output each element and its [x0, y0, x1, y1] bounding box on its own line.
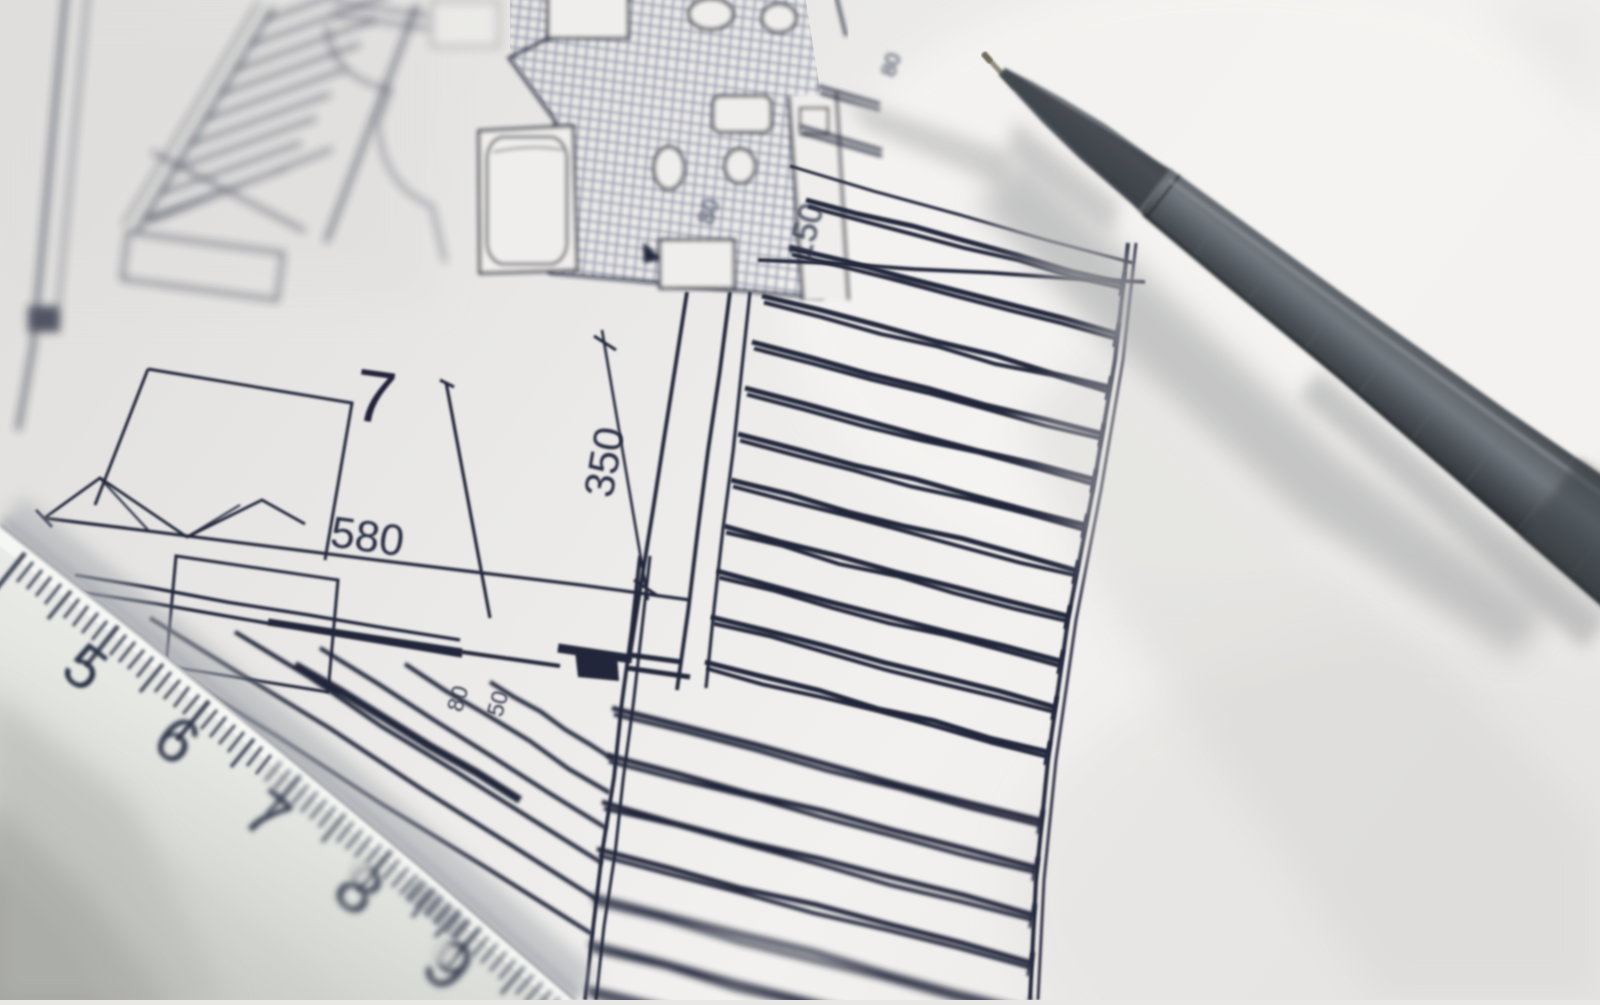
- svg-text:580: 580: [328, 507, 408, 566]
